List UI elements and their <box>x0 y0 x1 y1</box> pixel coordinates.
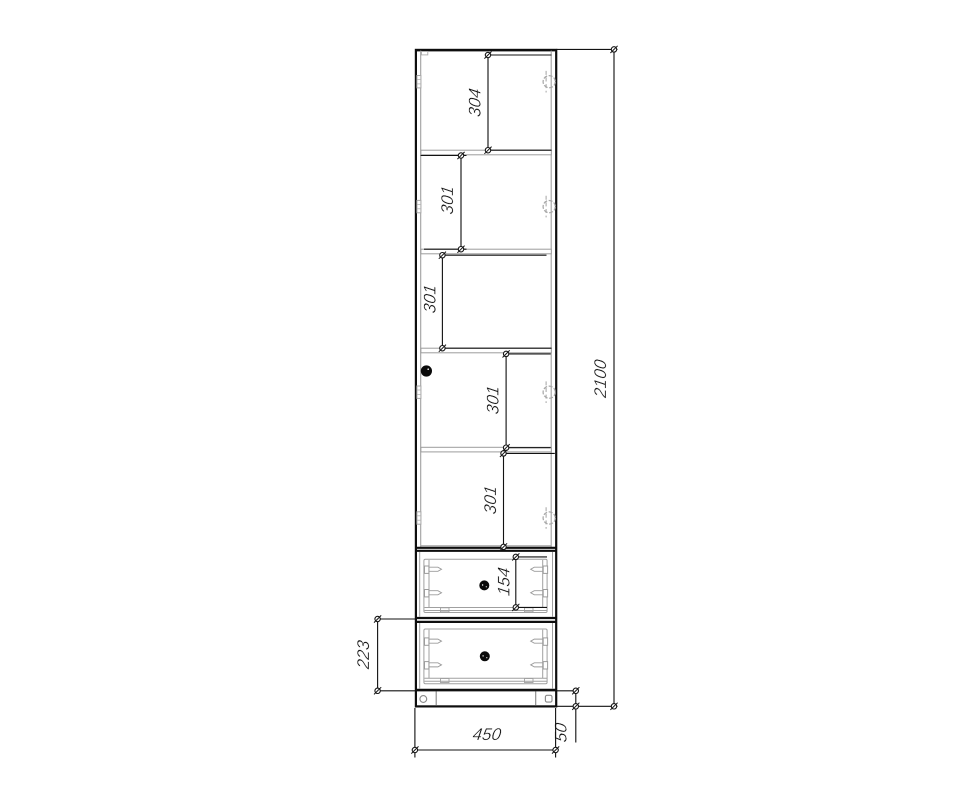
svg-text:154: 154 <box>495 566 514 597</box>
svg-text:301: 301 <box>421 283 440 314</box>
svg-text:301: 301 <box>484 384 503 415</box>
svg-text:2100: 2100 <box>591 358 610 400</box>
svg-text:301: 301 <box>438 185 457 216</box>
svg-text:450: 450 <box>471 725 503 744</box>
svg-text:223: 223 <box>354 639 373 672</box>
svg-text:50: 50 <box>552 721 571 743</box>
svg-text:301: 301 <box>481 484 500 515</box>
svg-text:304: 304 <box>465 87 484 118</box>
